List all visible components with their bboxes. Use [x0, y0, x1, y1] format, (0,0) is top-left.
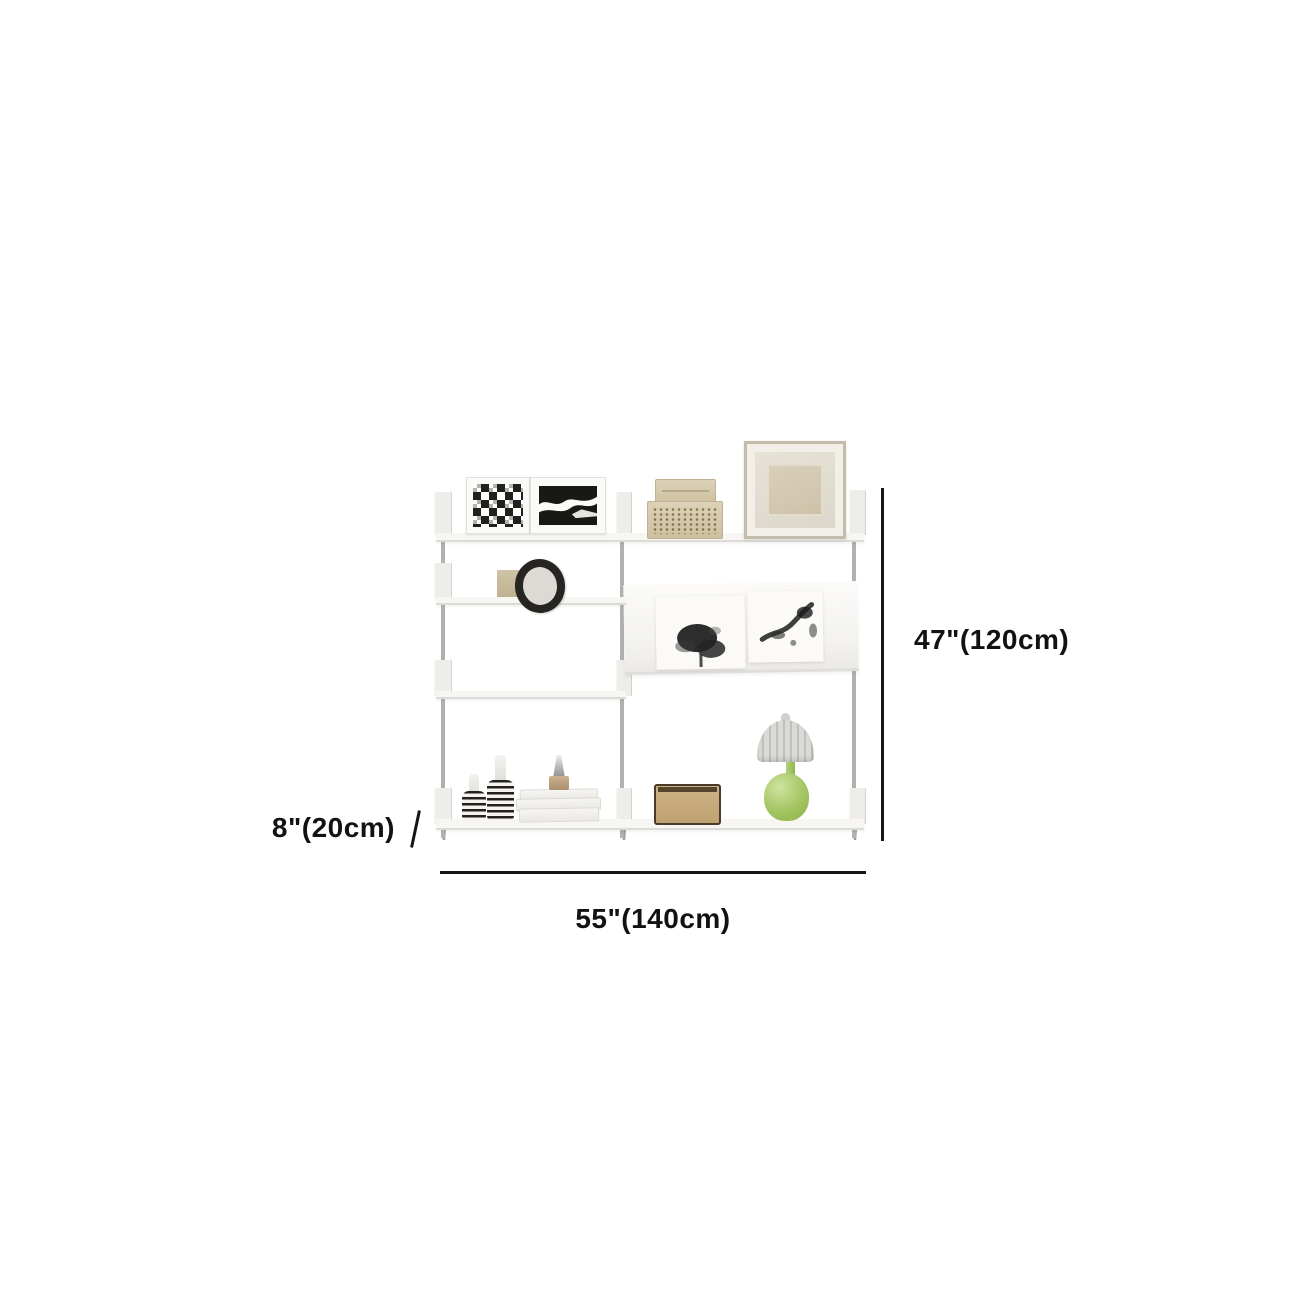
cube-pattern — [473, 484, 523, 527]
woven-box-base — [647, 501, 723, 539]
abstract-wave-art-frame — [530, 477, 606, 534]
perfume-base — [549, 776, 569, 790]
frame-art — [767, 464, 823, 516]
geometric-cube-art-frame — [466, 477, 530, 534]
lamp-shade — [757, 720, 814, 762]
book — [519, 807, 599, 822]
ink-art-print-right — [747, 590, 823, 662]
vase-body — [462, 791, 486, 820]
large-square-photo-frame — [744, 441, 846, 539]
rattan-speaker-box — [654, 784, 721, 825]
round-black-ring-ornament — [512, 557, 567, 616]
striped-vase-small — [462, 774, 486, 820]
bracket-left-top — [434, 492, 452, 535]
ink-art-print-left — [655, 595, 745, 670]
box-lid-line — [662, 490, 709, 492]
striped-vase-large — [487, 755, 514, 820]
perfume-bottle — [549, 755, 569, 791]
bracket-middle-top — [616, 492, 632, 535]
height-dimension-label: 47"(120cm) — [914, 624, 1069, 656]
white-book-stack — [516, 788, 600, 820]
bracket-left-2 — [434, 563, 452, 599]
product-dimension-page: { "diagram": { "type": "product-dimensio… — [0, 0, 1300, 1300]
width-dimension-label: 55"(140cm) — [530, 903, 776, 935]
bracket-right-top — [849, 490, 866, 535]
abstract-wave-art — [539, 486, 597, 525]
width-dimension-line — [440, 871, 866, 874]
height-dimension-line — [881, 488, 884, 841]
vase-body — [487, 780, 514, 820]
lamp-base — [764, 773, 809, 821]
shelf-left-lower — [436, 691, 626, 699]
depth-dimension-label: 8"(20cm) — [235, 812, 395, 844]
shelf-bottom — [436, 819, 864, 830]
perforation-pattern — [652, 507, 718, 534]
shelving-unit — [0, 0, 1300, 1300]
speaker-top-strip — [658, 787, 717, 792]
perfume-cap — [550, 755, 568, 777]
frame-mat — [755, 452, 835, 528]
